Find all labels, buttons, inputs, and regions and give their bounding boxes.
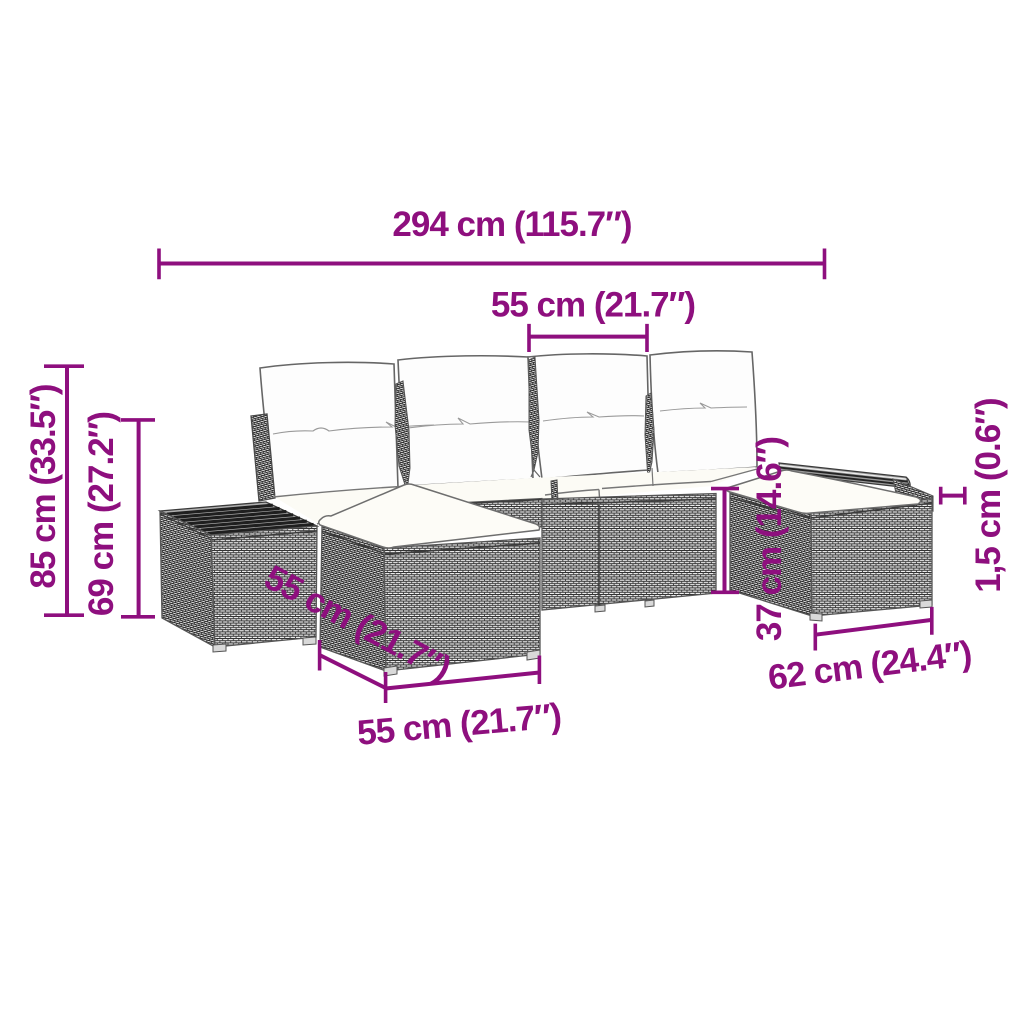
svg-text:1,5 cm (0.6″): 1,5 cm (0.6″) [969, 398, 1008, 592]
svg-text:55 cm (21.7″): 55 cm (21.7″) [491, 286, 695, 325]
svg-text:85 cm (33.5″): 85 cm (33.5″) [24, 384, 63, 588]
svg-text:37 cm (14.6″): 37 cm (14.6″) [750, 437, 789, 641]
svg-text:69 cm (27.2″): 69 cm (27.2″) [82, 412, 121, 616]
svg-text:294 cm (115.7″): 294 cm (115.7″) [392, 205, 631, 244]
